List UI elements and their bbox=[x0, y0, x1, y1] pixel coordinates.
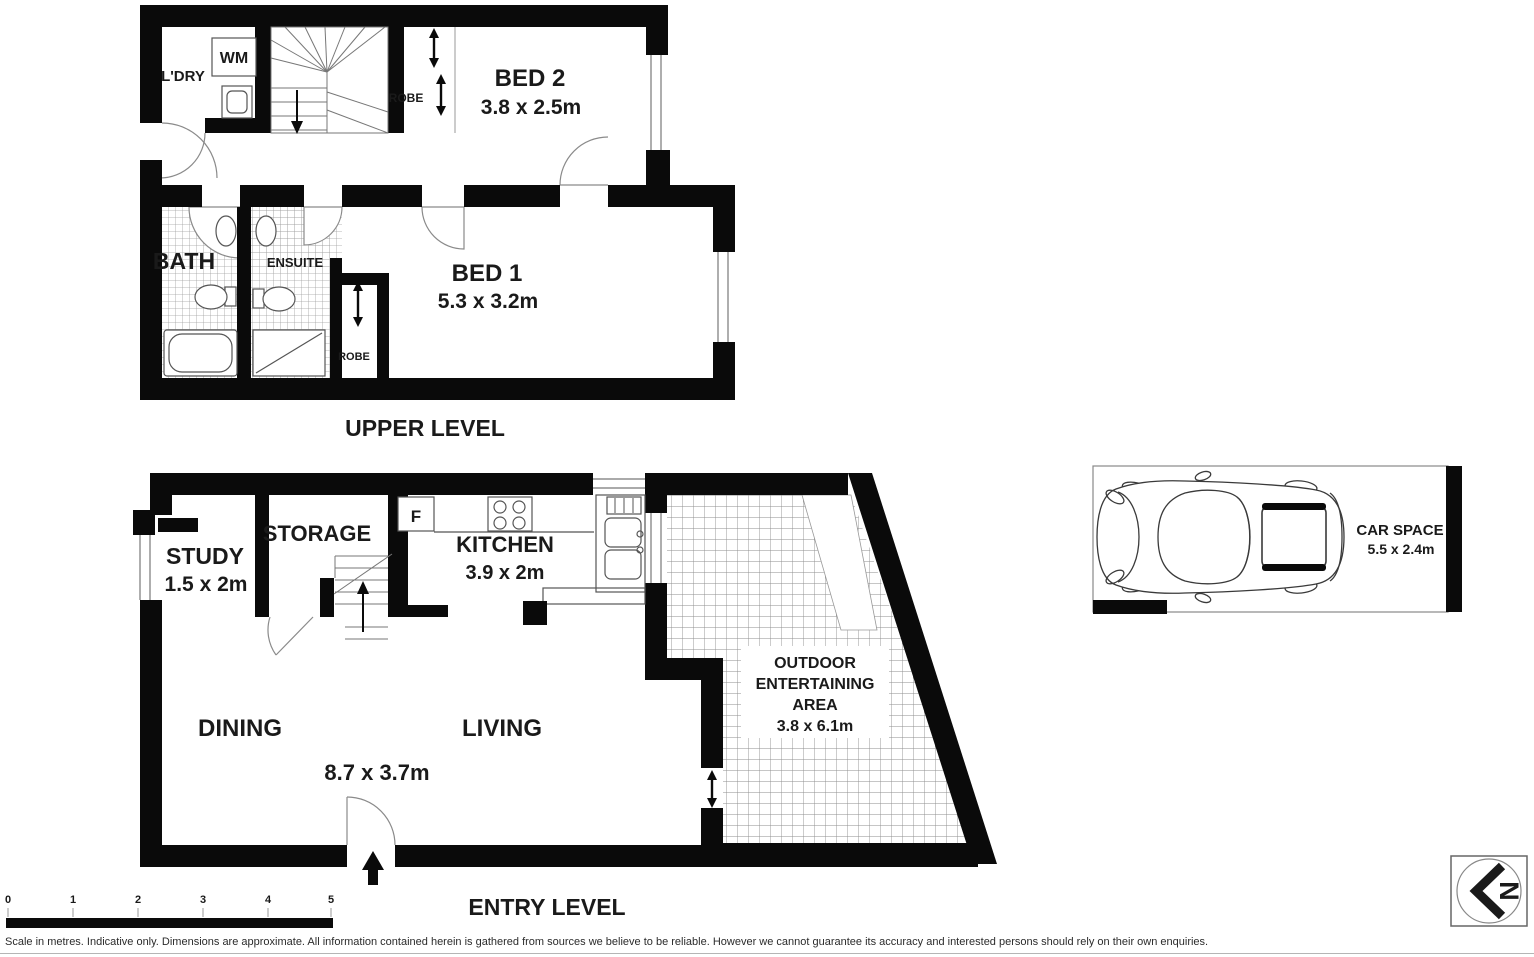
bed1-door-arc bbox=[422, 207, 464, 249]
car-rear-window-bottom bbox=[1262, 564, 1326, 571]
car-icon bbox=[1097, 470, 1344, 605]
bed2-label: BED 2 bbox=[495, 65, 566, 92]
stair-down-arrow-head bbox=[291, 121, 303, 134]
sink-bowl-2 bbox=[605, 550, 641, 579]
car-space: CAR SPACE 5.5 x 2.4m bbox=[1085, 460, 1470, 620]
entry-door-arc bbox=[347, 797, 395, 845]
disclaimer-text: Scale in metres. Indicative only. Dimens… bbox=[5, 936, 1208, 948]
bed2-door-arc bbox=[560, 137, 608, 185]
bed1-label: BED 1 bbox=[452, 260, 523, 287]
sink-bowl-1 bbox=[605, 518, 641, 547]
scale-tick-0: 0 bbox=[5, 894, 11, 906]
entry-level-plan: STUDY 1.5 x 2m STORAGE F KITCHEN 3.9 x 2… bbox=[130, 465, 1010, 885]
ensuite-label: ENSUITE bbox=[267, 255, 324, 270]
upper-level-plan: L'DRY WM ROBE BED 2 3.8 x 2.5m BATH ENSU… bbox=[140, 5, 740, 403]
dining-label: DINING bbox=[198, 715, 282, 742]
outdoor-door-arrows bbox=[707, 770, 717, 808]
bed1-dims: 5.3 x 3.2m bbox=[438, 290, 538, 313]
scale-tick-2: 2 bbox=[135, 894, 141, 906]
storage-label: STORAGE bbox=[263, 521, 371, 546]
bath-label: BATH bbox=[153, 248, 215, 274]
car-space-dims: 5.5 x 2.4m bbox=[1368, 541, 1435, 557]
laundry-door-arc bbox=[160, 133, 205, 178]
study-dims: 1.5 x 2m bbox=[165, 573, 248, 596]
car-space-label: CAR SPACE bbox=[1356, 522, 1443, 539]
kitchen-dims: 3.9 x 2m bbox=[466, 562, 545, 584]
living-label: LIVING bbox=[462, 715, 542, 742]
outdoor-label-2: ENTERTAINING bbox=[756, 676, 875, 693]
scale-bar: 0 1 2 3 4 5 bbox=[0, 885, 400, 935]
upper-level-title-wrap: UPPER LEVEL bbox=[300, 413, 560, 445]
storage-door-leaf bbox=[276, 617, 313, 655]
scale-tick-5: 5 bbox=[328, 894, 334, 906]
car-space-bottom-wall bbox=[1093, 600, 1167, 614]
scale-bar-rule bbox=[6, 918, 333, 928]
outdoor-label-1: OUTDOOR bbox=[774, 655, 856, 672]
floorplan-page: L'DRY WM ROBE BED 2 3.8 x 2.5m BATH ENSU… bbox=[0, 0, 1534, 957]
upper-staircase bbox=[271, 27, 388, 133]
stair-up-arrow-head bbox=[357, 581, 369, 594]
bed2-dims: 3.8 x 2.5m bbox=[481, 96, 581, 119]
bottom-divider bbox=[0, 953, 1534, 954]
car-rear-window-top bbox=[1262, 503, 1326, 510]
scale-tick-4: 4 bbox=[265, 894, 272, 906]
storage-door-arc bbox=[268, 617, 276, 655]
fridge-label: F bbox=[411, 507, 421, 526]
robe-top-arrows bbox=[429, 28, 446, 116]
car-space-right-wall bbox=[1446, 466, 1462, 612]
robe-top-label: ROBE bbox=[389, 91, 424, 105]
wm-label: WM bbox=[220, 50, 248, 67]
outdoor-label-3: AREA bbox=[792, 697, 838, 714]
compass: N bbox=[1445, 850, 1534, 935]
study-label: STUDY bbox=[166, 543, 244, 569]
outdoor-dims: 3.8 x 6.1m bbox=[777, 718, 854, 735]
kitchen-label: KITCHEN bbox=[456, 532, 554, 557]
entry-level-title-wrap: ENTRY LEVEL bbox=[420, 892, 680, 924]
laundry-label: L'DRY bbox=[161, 68, 205, 85]
robe-lower-label: ROBE bbox=[338, 351, 370, 363]
upper-level-title: UPPER LEVEL bbox=[345, 415, 505, 441]
kitchen-pillar bbox=[523, 601, 547, 625]
scale-tick-3: 3 bbox=[200, 894, 206, 906]
scale-tick-marks bbox=[8, 908, 331, 917]
kitchen-bench bbox=[596, 495, 645, 592]
entry-level-title: ENTRY LEVEL bbox=[468, 894, 625, 920]
compass-north-label: N bbox=[1494, 881, 1524, 901]
living-dining-dims: 8.7 x 3.7m bbox=[324, 760, 429, 785]
scale-tick-1: 1 bbox=[70, 894, 76, 906]
entry-arrow bbox=[362, 851, 384, 885]
kitchen-bench-return bbox=[543, 588, 645, 604]
